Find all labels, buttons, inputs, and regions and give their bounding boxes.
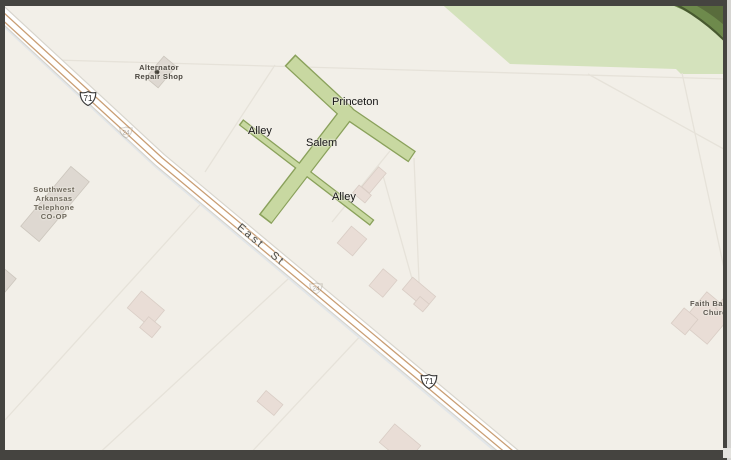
route-shield-number: 24 [119,129,133,136]
poi-label-line: Churc [690,308,727,317]
poi-label-telephone-coop: Southwest Arkansas Telephone CO-OP [24,185,84,221]
route-shield-number: 71 [79,94,97,103]
resize-grip[interactable] [723,448,731,458]
poi-label-line: Southwest [33,185,75,194]
poi-label-line: Faith Ba [690,299,723,308]
route-shield-number: 24 [309,285,323,292]
route-shield-24-faint: 24 [119,126,133,140]
route-shield-number: 71 [420,377,438,386]
poi-label-line: Arkansas [36,194,73,203]
map-canvas[interactable] [0,0,731,460]
route-shield-71: 71 [79,90,97,107]
window-border-left [0,0,5,460]
window-edge-strip [727,0,731,460]
poi-label-alternator-repair-shop: Alternator Repair Shop [130,63,188,81]
map-window: Princeton Salem Alley Alley East St Alte… [0,0,731,460]
street-label-princeton: Princeton [332,96,378,108]
street-label-alley-lower: Alley [332,191,356,203]
street-label-alley-upper: Alley [248,125,272,137]
poi-label-line: Alternator [139,63,179,72]
route-shield-24-faint: 24 [309,282,323,296]
route-shield-71: 71 [420,373,438,390]
window-border-top [0,0,731,6]
poi-label-line: Repair Shop [135,72,184,81]
poi-label-line: CO-OP [41,212,68,221]
window-border-bottom [0,450,731,460]
street-label-salem: Salem [306,137,337,149]
poi-label-line: Telephone [34,203,75,212]
